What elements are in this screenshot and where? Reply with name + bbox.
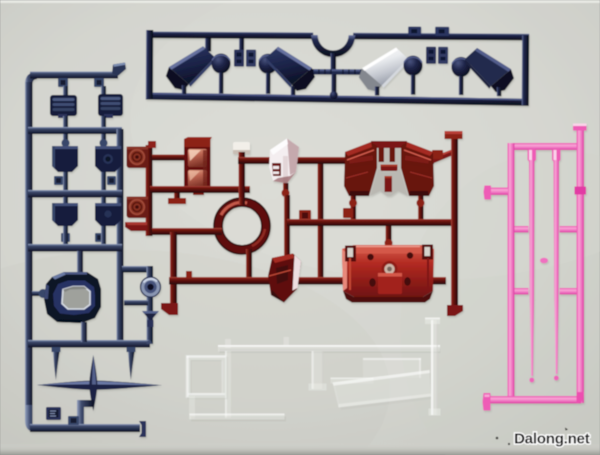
svg-text:Dalong.net: Dalong.net <box>514 431 590 448</box>
